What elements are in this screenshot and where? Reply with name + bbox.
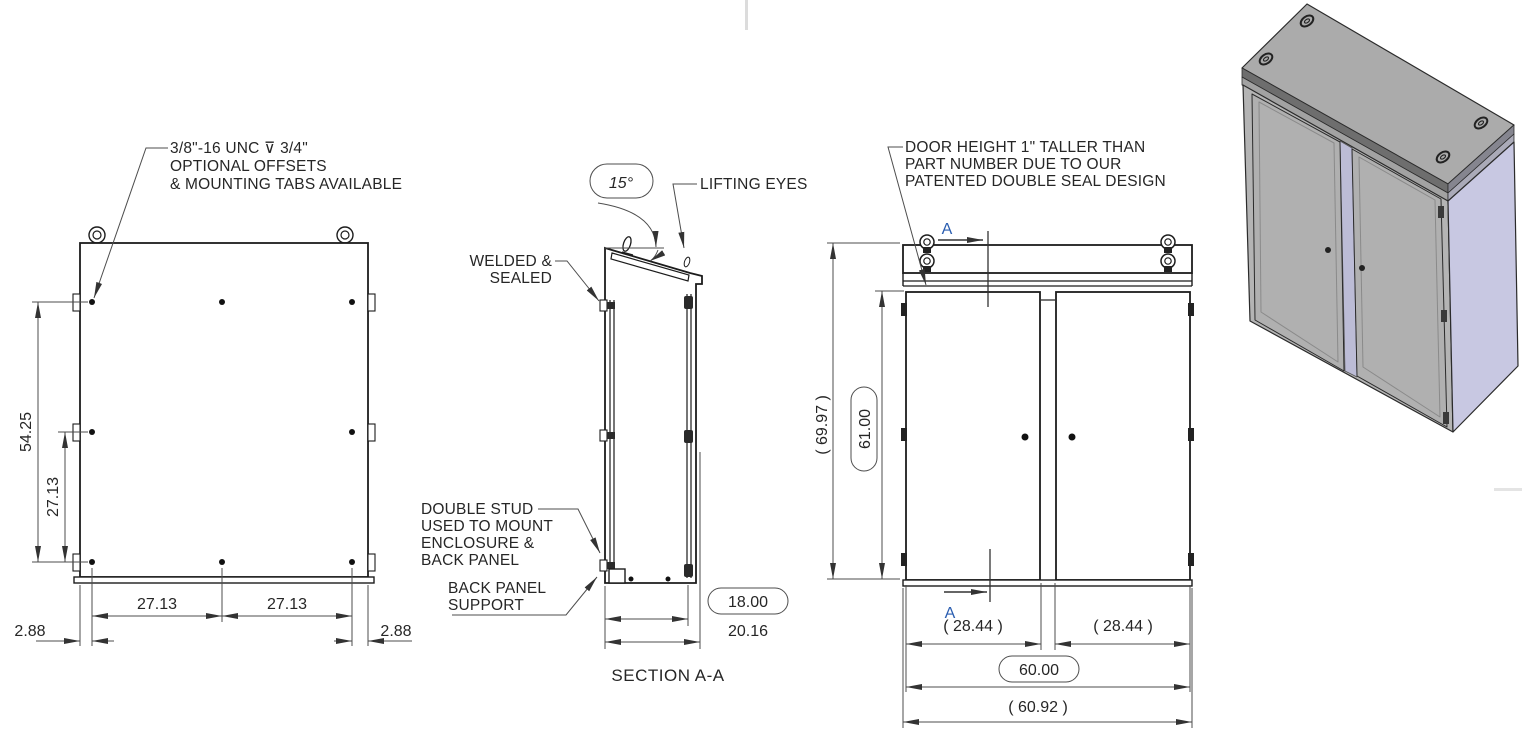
double-studs (600, 300, 615, 571)
lifting-eyes-leader (673, 184, 697, 248)
rear-bottom-flange (74, 577, 374, 583)
door-handle (1069, 434, 1076, 441)
door-handle (1359, 265, 1365, 271)
drawing-canvas: 3/8"-16 UNC ⊽ 3/4" OPTIONAL OFFSETS & MO… (0, 0, 1525, 752)
dim-door-width-left: ( 28.44 ) (943, 618, 1003, 635)
dim-width-overall: ( 60.92 ) (1008, 699, 1068, 716)
front-note-line1: DOOR HEIGHT 1" TALLER THAN (905, 139, 1145, 156)
rear-note-line3: & MOUNTING TABS AVAILABLE (170, 176, 402, 193)
front-note-line3: PATENTED DOUBLE SEAL DESIGN (905, 173, 1166, 190)
left-door (906, 292, 1040, 580)
dim-span-left: 27.13 (137, 596, 177, 613)
dim-27-13-v: 27.13 (45, 477, 62, 517)
dim-depth-inner: 18.00 (728, 594, 768, 611)
sloped-roof-panel (611, 253, 689, 281)
lifting-eyes-label: LIFTING EYES (700, 176, 807, 193)
front-bottom-flange (903, 580, 1192, 586)
double-stud-line1: DOUBLE STUD (421, 501, 533, 518)
door-handle (1325, 247, 1331, 253)
dim-door-height: 61.00 (857, 409, 874, 449)
dim-height-overall: ( 69.97 ) (814, 395, 831, 455)
iso-view (1242, 4, 1518, 432)
section-label-top: A (942, 221, 953, 238)
back-panel-support-line1: BACK PANEL (448, 580, 546, 597)
door-handle (1022, 434, 1029, 441)
rear-view: 3/8"-16 UNC ⊽ 3/4" OPTIONAL OFFSETS & MO… (14, 140, 412, 646)
rear-note-line1: 3/8"-16 UNC ⊽ 3/4" (170, 140, 308, 157)
rear-note-line2: OPTIONAL OFFSETS (170, 158, 327, 175)
dim-offset-left: 2.88 (14, 623, 45, 640)
dim-door-width-right: ( 28.44 ) (1093, 618, 1153, 635)
right-door (1056, 292, 1190, 580)
angle-dim: 15° (609, 175, 634, 192)
drawing-page: 3/8"-16 UNC ⊽ 3/4" OPTIONAL OFFSETS & MO… (0, 0, 1525, 752)
welded-leader (555, 261, 599, 301)
front-view: A A DOOR HEIGHT 1" TALLER THAN PART NUMB… (814, 139, 1194, 728)
door-hardware (684, 296, 693, 577)
scroll-artifact (1494, 488, 1522, 491)
section-caption: SECTION A-A (611, 666, 724, 685)
lifting-eye-icon (89, 227, 353, 243)
back-panel-support-block (609, 569, 625, 583)
dim-span-right: 27.13 (267, 596, 307, 613)
front-note-line2: PART NUMBER DUE TO OUR (905, 156, 1122, 173)
welded-label-line1: WELDED & (469, 253, 552, 270)
dim-54-25: 54.25 (18, 412, 35, 452)
double-stud-line3: ENCLOSURE & (421, 535, 535, 552)
dim-depth-overall: 20.16 (728, 623, 768, 640)
dim-width: 60.00 (1019, 662, 1059, 679)
front-roof-band (903, 245, 1192, 273)
double-stud-line2: USED TO MOUNT (421, 518, 553, 535)
page-divider (745, 0, 748, 30)
section-view: 15° LIFTING EYES WELDED & SEALED DOUBLE … (421, 164, 807, 685)
dim-offset-right: 2.88 (380, 623, 411, 640)
back-panel-support-line2: SUPPORT (448, 597, 524, 614)
rear-body-outline (80, 243, 368, 577)
double-stud-line4: BACK PANEL (421, 552, 519, 569)
welded-label-line2: SEALED (490, 270, 552, 287)
